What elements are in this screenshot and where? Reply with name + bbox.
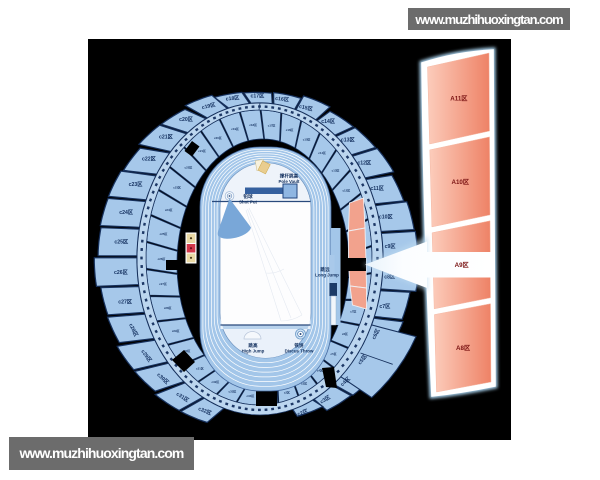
svg-text:c27区: c27区	[118, 298, 133, 306]
svg-text:c20区: c20区	[179, 115, 194, 123]
svg-text:c25区: c25区	[114, 238, 129, 246]
svg-text:c24区: c24区	[165, 207, 173, 212]
svg-text:c11区: c11区	[370, 184, 384, 192]
svg-text:High Jump: High Jump	[242, 349, 265, 354]
svg-text:Discus Throw: Discus Throw	[285, 349, 314, 354]
svg-text:c17区: c17区	[250, 92, 265, 100]
svg-text:c14区: c14区	[321, 117, 336, 125]
svg-text:c23区: c23区	[129, 180, 144, 188]
svg-text:c16区: c16区	[286, 127, 294, 132]
svg-text:c23区: c23区	[173, 184, 181, 189]
svg-text:c32区: c32区	[212, 379, 220, 384]
svg-text:A8区: A8区	[456, 344, 471, 352]
svg-text:c21区: c21区	[159, 133, 174, 141]
svg-text:A9区: A9区	[455, 261, 470, 269]
svg-text:c6区: c6区	[342, 331, 348, 336]
svg-text:c26区: c26区	[114, 268, 129, 276]
svg-text:c12区: c12区	[357, 158, 372, 166]
svg-text:c22区: c22区	[185, 165, 193, 170]
svg-text:c24区: c24区	[119, 208, 134, 216]
svg-text:A10区: A10区	[452, 178, 470, 186]
svg-text:c34区: c34区	[247, 393, 255, 398]
svg-text:c26区: c26区	[158, 256, 166, 261]
svg-text:Shot Put: Shot Put	[239, 200, 258, 205]
svg-text:c28区: c28区	[164, 305, 172, 310]
svg-text:c2区: c2区	[284, 389, 290, 394]
svg-text:c13区: c13区	[341, 136, 356, 144]
svg-text:c33区: c33区	[229, 388, 237, 393]
svg-text:c15区: c15区	[303, 137, 311, 142]
svg-text:c29区: c29区	[172, 328, 180, 333]
svg-text:c17区: c17区	[268, 122, 276, 127]
svg-text:c25区: c25区	[160, 231, 168, 236]
svg-text:c20区: c20区	[214, 135, 222, 140]
svg-text:A11区: A11区	[450, 95, 468, 103]
svg-text:c13区: c13区	[332, 167, 340, 172]
svg-text:c27区: c27区	[159, 281, 167, 286]
svg-text:c19区: c19区	[231, 126, 239, 131]
svg-text:c31区: c31区	[196, 365, 204, 370]
svg-text:c18区: c18区	[249, 122, 257, 127]
svg-text:Long Jump: Long Jump	[315, 273, 339, 278]
svg-text:c9区: c9区	[385, 242, 397, 250]
svg-text:c7区: c7区	[379, 302, 391, 310]
svg-text:c10区: c10区	[379, 212, 394, 220]
svg-text:c22区: c22区	[142, 155, 157, 163]
svg-text:c21区: c21区	[198, 148, 206, 153]
svg-text:c14区: c14区	[318, 150, 326, 155]
svg-text:c12区: c12区	[342, 188, 350, 193]
svg-text:c7区: c7区	[350, 309, 356, 314]
svg-text:Pole Vault: Pole Vault	[279, 179, 301, 184]
svg-text:c5区: c5区	[331, 351, 337, 356]
